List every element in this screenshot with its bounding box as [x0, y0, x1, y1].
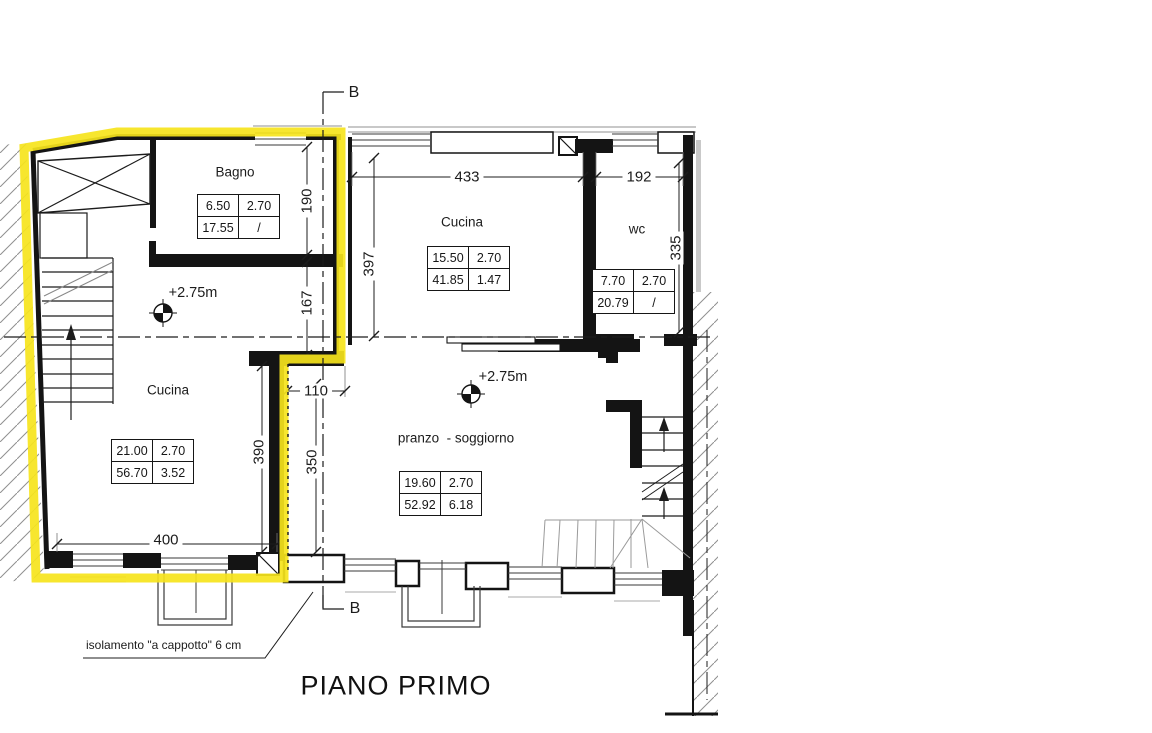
staircase-left: [38, 154, 150, 420]
room-label-bagno: Bagno: [215, 165, 254, 179]
dim-label-110: 110: [300, 384, 332, 399]
insulation-annotation: isolamento "a cappotto" 6 cm: [86, 638, 241, 652]
walls: [33, 132, 697, 636]
level-label: +2.75m: [479, 370, 528, 385]
dim-label-350: 350: [305, 445, 320, 478]
context-hatching: [0, 126, 718, 716]
room-table-wc: 7.702.70 20.79/: [592, 269, 675, 314]
dim-label-167: 167: [300, 286, 315, 319]
room-label-cucina-left: Cucina: [147, 383, 189, 397]
dim-label-433: 433: [450, 170, 483, 185]
page-title: PIANO PRIMO: [300, 673, 491, 700]
section-marker-b-top: B: [349, 85, 360, 101]
dim-label-400: 400: [149, 533, 182, 548]
level-marker-icon: [149, 299, 177, 327]
dim-label-192: 192: [622, 170, 655, 185]
section-marker-b-bottom: B: [350, 601, 361, 617]
dim-label-190: 190: [300, 184, 315, 217]
level-label: +2.75m: [169, 286, 218, 301]
room-label-pranzo-soggiorno: pranzo - soggiorno: [398, 431, 514, 445]
room-table-cucina-top: 15.502.70 41.851.47: [427, 246, 510, 291]
dim-label-397: 397: [362, 247, 377, 280]
floorplan-drawing: [0, 0, 1152, 733]
room-label-cucina-top: Cucina: [441, 215, 483, 229]
stair-up-arrow-icon: [659, 487, 669, 501]
room-table-pranzo: 19.602.70 52.926.18: [399, 471, 482, 516]
dim-label-335: 335: [669, 231, 684, 264]
dim-label-390: 390: [252, 435, 267, 468]
staircase-right: [542, 417, 690, 568]
stair-up-arrow-icon: [659, 417, 669, 431]
room-label-wc: wc: [629, 222, 646, 236]
floorplan-canvas: Bagno Cucina wc Cucina pranzo - soggiorn…: [0, 0, 1152, 733]
room-table-bagno: 6.502.70 17.55/: [197, 194, 280, 239]
room-table-cucina-left: 21.002.70 56.703.52: [111, 439, 194, 484]
